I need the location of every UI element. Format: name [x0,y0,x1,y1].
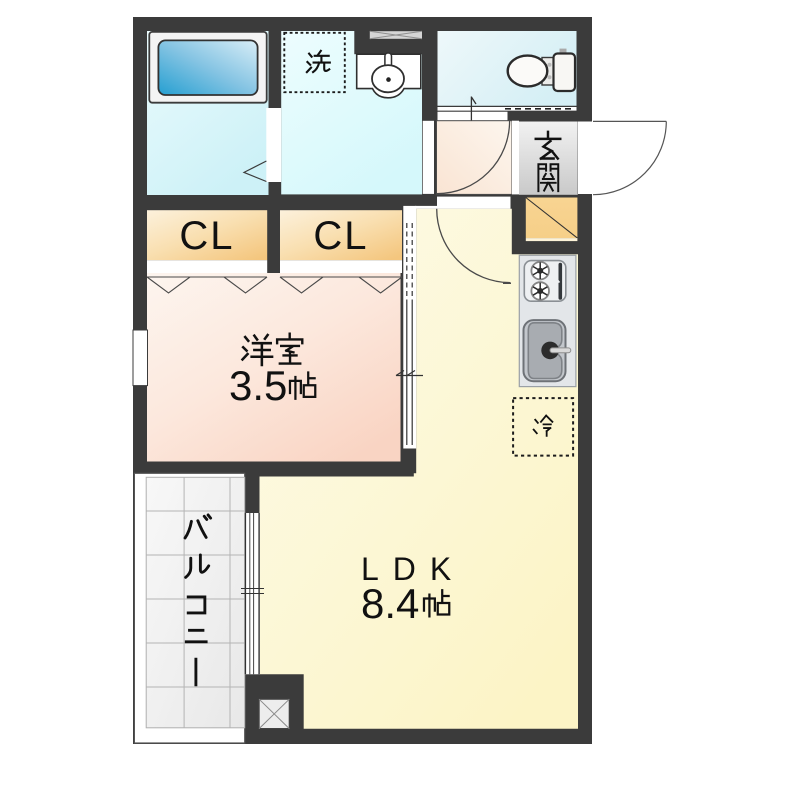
svg-text:CL: CL [179,214,234,258]
svg-text:3.5: 3.5 [229,362,287,409]
svg-text:CL: CL [313,214,368,258]
svg-text:8.4: 8.4 [361,580,419,627]
